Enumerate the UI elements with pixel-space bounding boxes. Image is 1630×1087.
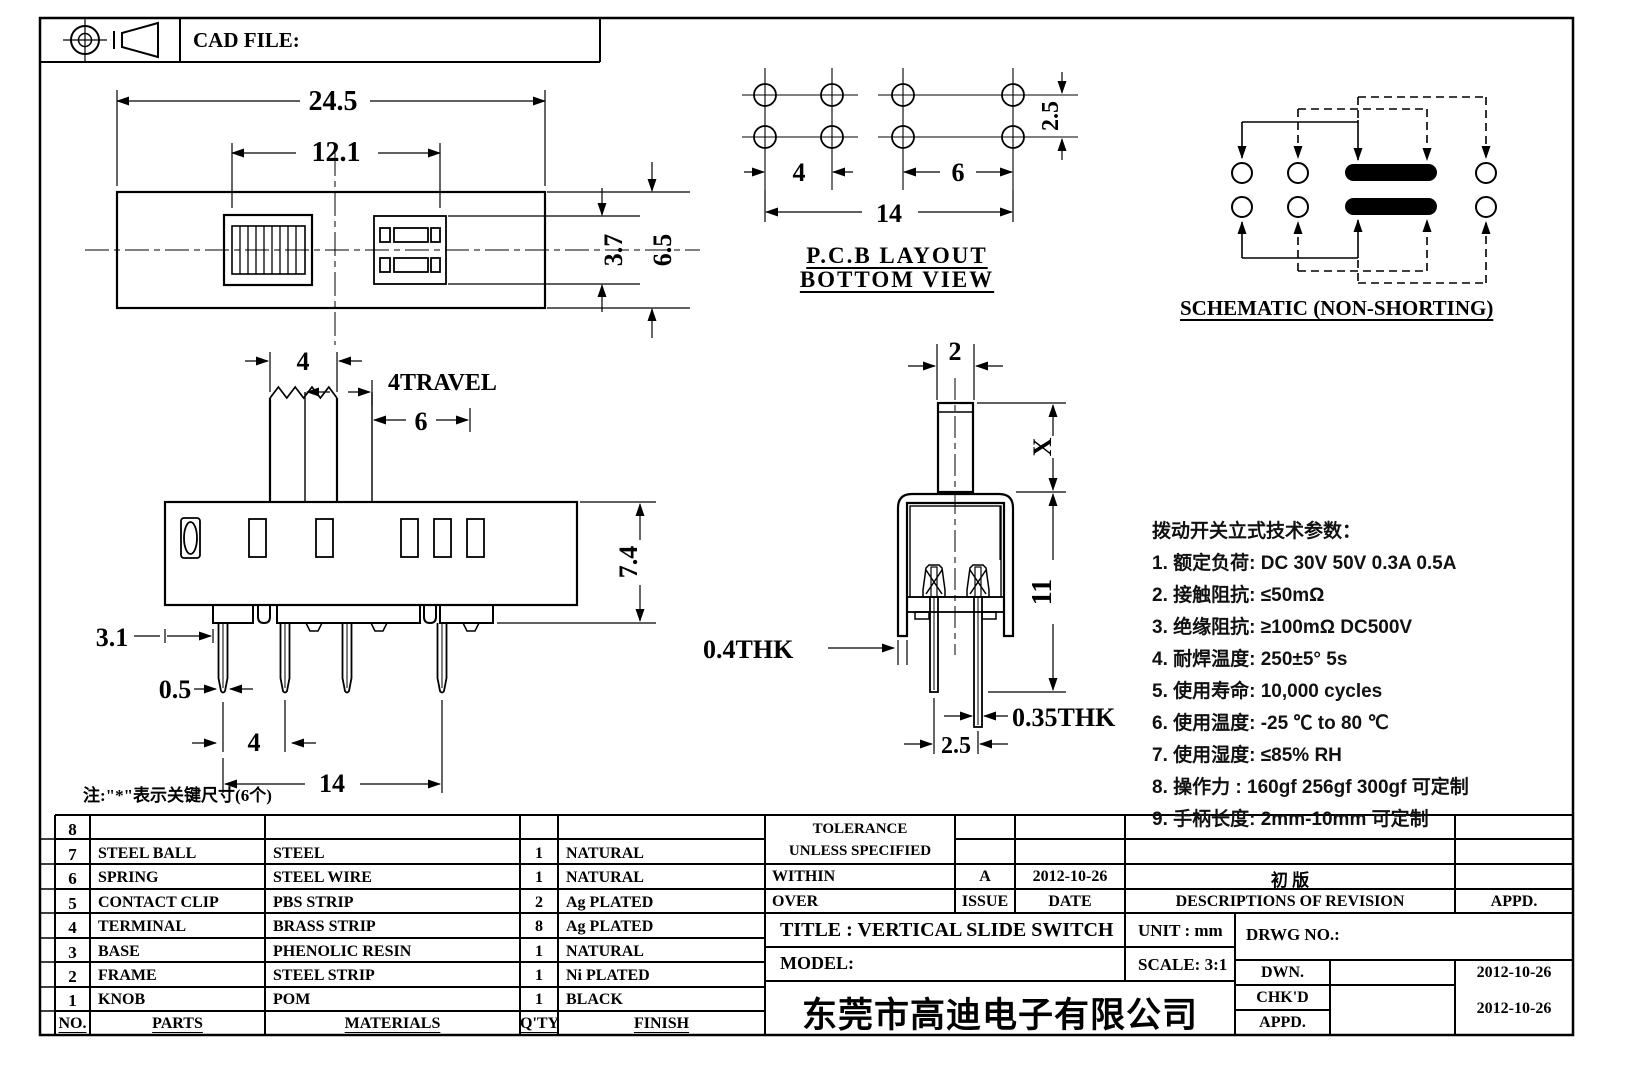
pcb-layout-title: P.C.B LAYOUT: [797, 243, 997, 269]
top-view: 24.5 12.1 3.7 6.5: [85, 86, 700, 345]
moving-contact-top: [1345, 164, 1437, 181]
date-label: DATE: [1015, 893, 1125, 911]
table-cell: POM: [273, 991, 518, 1009]
drawing-title: TITLE : VERTICAL SLIDE SWITCH: [780, 919, 1125, 942]
dwn-date: 2012-10-26: [1455, 964, 1573, 982]
table-cell: 6: [55, 869, 90, 889]
dim-side-height: 7.4: [614, 546, 643, 579]
table-cell: FRAME: [98, 967, 263, 985]
pcb-layout-view: 4 6 14 2.5: [742, 68, 1078, 228]
table-cell: Ag PLATED: [566, 918, 761, 936]
dim-pcb-pitch-left: 4: [793, 158, 806, 187]
appd-column-label: APPD.: [1455, 893, 1573, 911]
table-cell: 8: [55, 820, 90, 840]
dim-pcb-pitch-right: 6: [952, 158, 965, 187]
spec-item: 4. 耐焊温度: 250±5° 5s: [1152, 644, 1582, 676]
spec-item: 1. 额定负荷: DC 30V 50V 0.3A 0.5A: [1152, 548, 1582, 580]
dim-front-pin-pitch: 2.5: [941, 733, 971, 759]
moving-contact-bottom: [1345, 198, 1437, 215]
spec-item: 3. 绝缘阻抗: ≥100mΩ DC500V: [1152, 612, 1582, 644]
descriptions-of-revision-label: DESCRIPTIONS OF REVISION: [1125, 893, 1455, 911]
table-cell: SPRING: [98, 869, 263, 887]
table-cell: 1: [520, 845, 558, 863]
spec-item: 9. 手柄长度: 2mm-10mm 可定制: [1152, 804, 1582, 836]
over-label: OVER: [772, 893, 952, 911]
dim-terminal-thickness: 0.35THK: [1012, 703, 1116, 732]
dim-frame-thickness: 0.4THK: [703, 635, 794, 664]
dim-slot-height: 3.7: [599, 234, 628, 267]
table-header: PARTS: [90, 1015, 265, 1033]
dim-body-height: 6.5: [648, 234, 677, 267]
spec-item: 7. 使用湿度: ≤85% RH: [1152, 740, 1582, 772]
unit-label: UNIT : mm: [1138, 921, 1233, 941]
table-cell: 4: [55, 918, 90, 938]
issue-label: ISSUE: [955, 893, 1015, 911]
schematic-title: SCHEMATIC (NON-SHORTING): [1180, 296, 1480, 321]
spec-item: 8. 操作力 : 160gf 256gf 300gf 可定制: [1152, 772, 1582, 804]
table-cell: 1: [520, 967, 558, 985]
dim-pin-span: 14: [319, 769, 345, 798]
table-cell: NATURAL: [566, 869, 761, 887]
frame-ticks: [40, 839, 55, 1011]
dim-knob-width: 4: [297, 347, 310, 376]
table-cell: KNOB: [98, 991, 263, 1009]
revision-date: 2012-10-26: [1015, 868, 1125, 886]
company-name: 东莞市高迪电子有限公司: [765, 987, 1235, 1038]
projection-symbol-icon: [63, 19, 158, 61]
dim-pin-thickness: 0.5: [159, 675, 192, 704]
dim-overall-width: 24.5: [309, 86, 358, 117]
dim-travel-span: 6: [415, 407, 428, 436]
dim-pin-pitch: 4: [248, 728, 261, 757]
pcb-bottom-view-title: BOTTOM VIEW: [797, 267, 997, 293]
table-cell: 1: [520, 943, 558, 961]
table-cell: STEEL STRIP: [273, 967, 518, 985]
spec-item: 5. 使用寿命: 10,000 cycles: [1152, 676, 1582, 708]
revision-description: 初 版: [1125, 866, 1455, 891]
table-header: Q'TY: [520, 1015, 558, 1033]
appd-label: APPD.: [1235, 1014, 1330, 1032]
drwg-no-label: DRWG NO.:: [1246, 925, 1566, 945]
chkd-label: CHK'D: [1235, 989, 1330, 1007]
base-tabs: [213, 605, 493, 631]
table-cell: Ni PLATED: [566, 967, 761, 985]
table-cell: BLACK: [566, 991, 761, 1009]
table-cell: NATURAL: [566, 943, 761, 961]
table-cell: 1: [520, 991, 558, 1009]
dim-front-body-height: 11: [1027, 579, 1058, 605]
dim-inner-width: 12.1: [312, 137, 361, 168]
table-cell: 2: [520, 894, 558, 912]
table-cell: TERMINAL: [98, 918, 263, 936]
table-cell: 5: [55, 894, 90, 914]
table-cell: PHENOLIC RESIN: [273, 943, 518, 961]
dwn-label: DWN.: [1235, 964, 1330, 982]
technical-parameters: 拨动开关立式技术参数： 1. 额定负荷: DC 30V 50V 0.3A 0.5…: [1152, 516, 1582, 836]
top-face-holes: [181, 518, 484, 558]
tolerance-label: TOLERANCE: [765, 821, 955, 838]
scale-label: SCALE: 3:1: [1138, 955, 1233, 975]
dim-edge-offset: 3.1: [96, 623, 129, 652]
table-cell: STEEL BALL: [98, 845, 263, 863]
table-cell: BRASS STRIP: [273, 918, 518, 936]
dim-front-knob-width: 2: [949, 337, 962, 366]
front-view: 2 X 11 0.4THK 0.35THK 2.5: [703, 337, 1116, 759]
chkd-appd-date: 2012-10-26: [1455, 1000, 1573, 1018]
dim-travel-label: 4TRAVEL: [388, 370, 497, 396]
dim-pcb-span: 14: [876, 199, 902, 228]
terminal-pins: [219, 623, 447, 693]
table-header: NO.: [55, 1015, 90, 1033]
table-header: MATERIALS: [265, 1015, 520, 1033]
key-dimension-note: 注:"*"表示关键尺寸(6个): [83, 781, 272, 806]
dim-front-knob-height: X: [1028, 437, 1057, 456]
table-cell: NATURAL: [566, 845, 761, 863]
front-pins: [930, 597, 982, 727]
table-cell: STEEL: [273, 845, 518, 863]
tolerance-label-2: UNLESS SPECIFIED: [765, 843, 955, 860]
within-label: WITHIN: [772, 868, 952, 886]
contact-clips: [923, 565, 989, 597]
table-cell: STEEL WIRE: [273, 869, 518, 887]
dim-pcb-row-pitch: 2.5: [1038, 101, 1064, 131]
spec-item: 2. 接触阻抗: ≤50mΩ: [1152, 580, 1582, 612]
table-cell: PBS STRIP: [273, 894, 518, 912]
table-header: FINISH: [558, 1015, 765, 1033]
specs-title: 拨动开关立式技术参数：: [1152, 516, 1582, 548]
model-label: MODEL:: [780, 953, 1125, 974]
table-cell: 1: [55, 991, 90, 1011]
table-cell: CONTACT CLIP: [98, 894, 263, 912]
spec-item: 6. 使用温度: -25 ℃ to 80 ℃: [1152, 708, 1582, 740]
table-cell: BASE: [98, 943, 263, 961]
engineering-drawing-page: 24.5 12.1 3.7 6.5 4 6 14 2.: [0, 0, 1630, 1087]
side-view: 4 4TRAVEL 6 7.4 3.1 0.5 4 14: [96, 347, 656, 798]
schematic-view: [1232, 97, 1496, 283]
table-cell: Ag PLATED: [566, 894, 761, 912]
issue-value: A: [955, 868, 1015, 886]
table-cell: 7: [55, 845, 90, 865]
cad-file-label: CAD FILE:: [193, 28, 300, 53]
table-cell: 8: [520, 918, 558, 936]
table-cell: 2: [55, 967, 90, 987]
table-cell: 1: [520, 869, 558, 887]
table-cell: 3: [55, 943, 90, 963]
